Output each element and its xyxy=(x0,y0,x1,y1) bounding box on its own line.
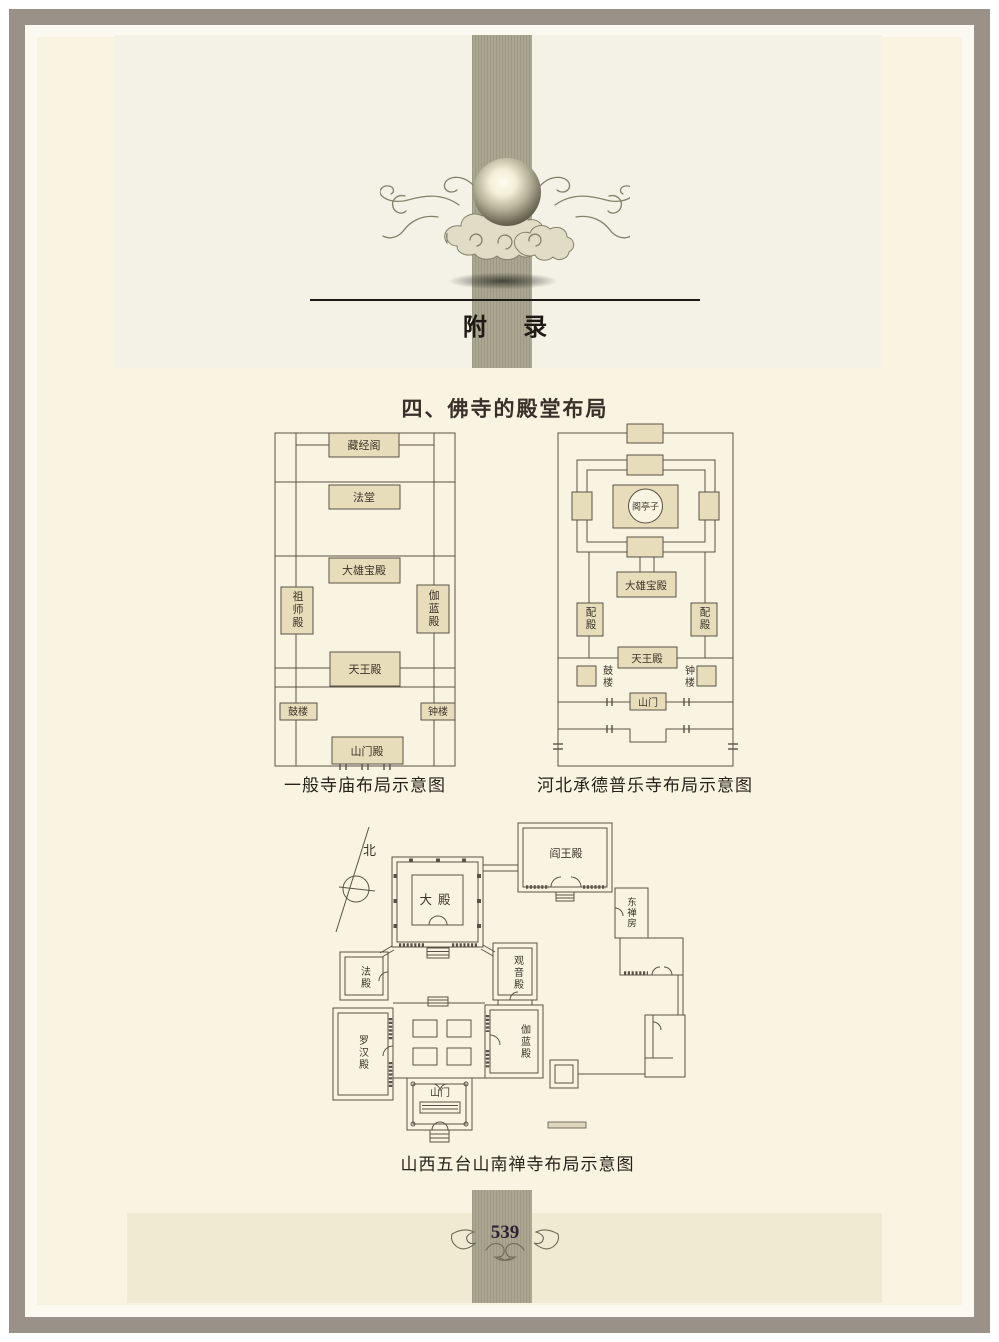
label-cangjingge: 藏经阁 xyxy=(348,438,381,452)
label-fatang: 法堂 xyxy=(353,490,375,504)
detached-wall-bar xyxy=(548,1122,586,1128)
label-tianwangdian: 天王殿 xyxy=(349,663,382,676)
guanyindian-hall: 观音殿 xyxy=(481,943,537,1005)
diagram-nanchan-temple: 北 大殿 xyxy=(328,818,703,1153)
label-daxiongbaodian: 大雄宝殿 xyxy=(342,563,386,577)
general-buildings: 藏经阁 法堂 大雄宝殿 祖师殿 伽蓝殿 天王殿 鼓楼 钟楼 山门殿 xyxy=(280,433,455,764)
east-rooms: 东禅房 xyxy=(550,888,685,1088)
page-number: 539 xyxy=(455,1222,555,1244)
dadian-hall: 大殿 xyxy=(392,857,483,958)
diagram-pule-temple: 阁亭子 大雄宝殿 配殿 配殿 天王殿 鼓楼 钟楼 山门 xyxy=(545,415,745,780)
label-peidian-right: 配殿 xyxy=(699,607,710,632)
pule-buildings: 阁亭子 大雄宝殿 配殿 配殿 天王殿 鼓楼 钟楼 山门 xyxy=(572,424,719,710)
qielandian-hall: 伽蓝殿 xyxy=(485,1005,543,1078)
label-dongchanfang: 东禅房 xyxy=(625,897,637,929)
diagram-general-temple: 藏经阁 法堂 大雄宝殿 祖师殿 伽蓝殿 天王殿 鼓楼 钟楼 山门殿 xyxy=(258,420,472,780)
fadian-hall: 法殿 xyxy=(340,946,394,1000)
pearl-shadow xyxy=(448,273,558,290)
label-fadian: 法殿 xyxy=(359,965,371,990)
courtyard xyxy=(393,997,485,1065)
label-yanwangdian: 阎王殿 xyxy=(550,846,583,860)
caption-pule-temple: 河北承德普乐寺布局示意图 xyxy=(520,771,770,796)
label-pule-zhonglou: 钟楼 xyxy=(683,664,695,689)
pearl-icon xyxy=(473,158,541,226)
label-pule-daxiongbaodian: 大雄宝殿 xyxy=(625,579,667,592)
label-shanmendian: 山门殿 xyxy=(351,744,384,758)
label-peidian-left: 配殿 xyxy=(585,607,596,632)
label-zhonglou: 钟楼 xyxy=(428,705,448,718)
label-pule-gulou: 鼓楼 xyxy=(601,664,613,689)
yanwangdian-hall: 阎王殿 xyxy=(483,823,612,901)
label-getingzi: 阁亭子 xyxy=(632,501,659,512)
label-guanyindian: 观音殿 xyxy=(512,955,524,991)
title-rule xyxy=(310,299,700,301)
label-zushidian: 祖师殿 xyxy=(291,589,304,629)
label-nanchan-qielandian: 伽蓝殿 xyxy=(519,1023,531,1060)
caption-nanchan-temple: 山西五台山南禅寺布局示意图 xyxy=(360,1150,675,1175)
luohandian-hall: 罗汉殿 xyxy=(333,1008,393,1100)
caption-general-temple: 一般寺庙布局示意图 xyxy=(240,771,490,796)
label-nanchan-shanmen: 山门 xyxy=(430,1086,450,1099)
label-pule-shanmen: 山门 xyxy=(638,696,658,709)
shanmen-gatehouse: 山门 xyxy=(393,1078,485,1142)
appendix-title: 附 录 xyxy=(355,307,655,342)
label-dadian: 大殿 xyxy=(419,893,456,907)
label-north: 北 xyxy=(363,843,376,858)
pule-walls xyxy=(558,433,733,766)
label-luohandian: 罗汉殿 xyxy=(357,1035,369,1071)
pearl-and-cloud-ornament-icon xyxy=(380,150,630,295)
label-pule-tianwangdian: 天王殿 xyxy=(631,653,663,665)
label-gulou: 鼓楼 xyxy=(288,705,308,718)
label-qielandian: 伽蓝殿 xyxy=(427,588,440,628)
